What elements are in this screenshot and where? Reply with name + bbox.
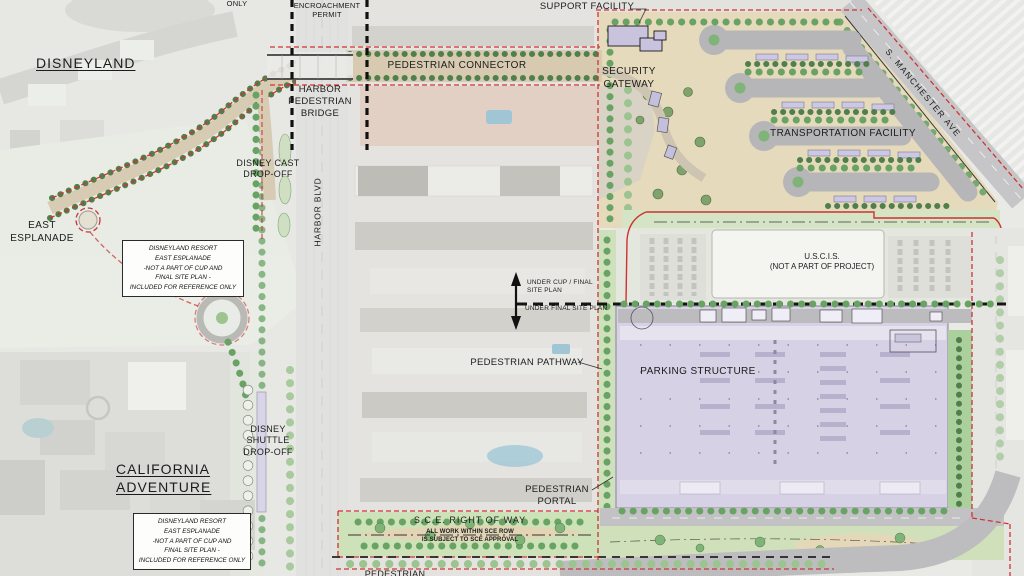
- parking-structure-label: PARKING STRUCTURE: [640, 366, 756, 379]
- harbor-pedestrian-bridge-label: HARBOR PEDESTRIAN BRIDGE: [288, 84, 352, 120]
- encroachment-permit-label: ENCROACHMENT PERMIT: [294, 1, 361, 20]
- under-final-label: UNDER FINAL SITE PLAN: [525, 305, 607, 313]
- under-cup-final-label: UNDER CUP / FINAL SITE PLAN: [527, 279, 593, 295]
- disneyland-label: DISNEYLAND: [36, 55, 135, 73]
- harbor-blvd-label: HARBOR BLVD: [313, 177, 324, 246]
- pedestrian-connector-label: PEDESTRIAN CONNECTOR: [388, 60, 527, 73]
- east-esplanade-label: EAST ESPLANADE: [10, 220, 74, 245]
- reference-only-label: REFERENCE ONLY: [213, 0, 261, 9]
- site-plan-canvas: REFERENCE ONLY ENCROACHMENT PERMIT DISNE…: [0, 0, 1024, 576]
- east-esplanade-note-lower: DISNEYLAND RESORT EAST ESPLANADE -NOT A …: [133, 513, 251, 570]
- pedestrian-portal-label: PEDESTRIAN PORTAL: [525, 484, 589, 508]
- harbor-pedestrian-bridge-deck: [267, 52, 353, 80]
- security-gateway-label: SECURITY GATEWAY: [602, 66, 656, 91]
- pedestrian-pathway-label: PEDESTRIAN PATHWAY: [470, 357, 583, 369]
- uscis-label: U.S.C.I.S. (NOT A PART OF PROJECT): [770, 252, 874, 272]
- east-esplanade-note-upper: DISNEYLAND RESORT EAST ESPLANADE -NOT A …: [122, 240, 244, 297]
- transportation-facility-label: TRANSPORTATION FACILITY: [770, 128, 916, 141]
- sce-note-label: ALL WORK WITHIN SCE ROW IS SUBJECT TO SC…: [422, 529, 518, 544]
- california-adventure-label: CALIFORNIA ADVENTURE: [116, 461, 211, 496]
- sce-right-of-way-label: S.C.E. RIGHT OF WAY: [414, 515, 526, 526]
- pedestrian-partial-label: PEDESTRIAN: [365, 569, 426, 576]
- disney-cast-drop-off-label: DISNEY CAST DROP-OFF: [236, 158, 299, 181]
- support-facility-label: SUPPORT FACILITY: [540, 1, 634, 13]
- disney-shuttle-drop-off-label: DISNEY SHUTTLE DROP-OFF: [243, 424, 292, 458]
